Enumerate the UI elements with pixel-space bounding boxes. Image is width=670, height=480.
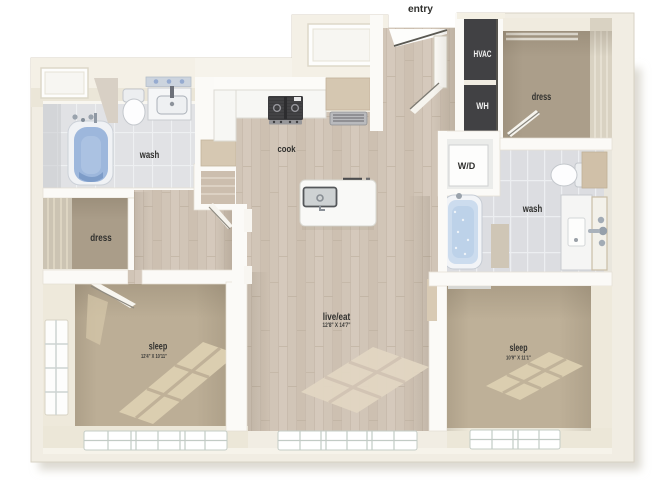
svg-text:dress: dress xyxy=(532,92,552,103)
svg-text:WH: WH xyxy=(476,101,489,111)
svg-text:sleep: sleep xyxy=(149,342,168,353)
svg-text:dress: dress xyxy=(90,233,112,244)
svg-text:12'8" X 14'7": 12'8" X 14'7" xyxy=(323,323,351,329)
svg-text:sleep: sleep xyxy=(510,343,528,354)
svg-text:12'4" X 10'11": 12'4" X 10'11" xyxy=(141,354,167,360)
svg-text:HVAC: HVAC xyxy=(474,49,492,59)
svg-text:cook: cook xyxy=(278,144,297,155)
svg-text:live/eat: live/eat xyxy=(323,312,351,323)
svg-text:10'9" X 11'1": 10'9" X 11'1" xyxy=(506,356,531,362)
svg-text:wash: wash xyxy=(522,204,542,215)
svg-text:W/D: W/D xyxy=(458,161,476,171)
svg-text:wash: wash xyxy=(139,150,159,161)
svg-text:entry: entry xyxy=(408,3,433,15)
